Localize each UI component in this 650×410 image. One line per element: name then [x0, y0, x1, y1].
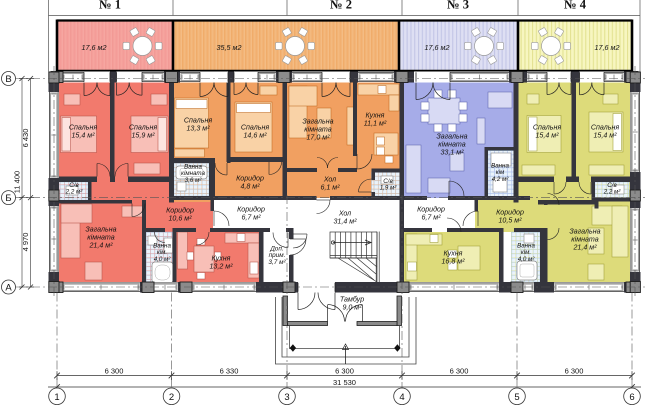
- svg-text:14,6 м²: 14,6 м²: [243, 131, 267, 139]
- svg-text:4: 4: [399, 392, 404, 403]
- svg-text:Коридор: Коридор: [496, 209, 524, 217]
- svg-text:3,6 м²: 3,6 м²: [185, 177, 203, 184]
- svg-text:13,2 м²: 13,2 м²: [209, 262, 233, 270]
- svg-text:15,9 м²: 15,9 м²: [131, 131, 155, 139]
- svg-text:10,6 м²: 10,6 м²: [168, 214, 192, 222]
- svg-text:10,5 м²: 10,5 м²: [498, 216, 522, 224]
- svg-text:6,1 м²: 6,1 м²: [320, 183, 340, 191]
- svg-text:Кухня: Кухня: [444, 250, 463, 258]
- svg-text:Кухня: Кухня: [212, 255, 231, 263]
- svg-text:Хол: Хол: [338, 210, 351, 218]
- svg-text:17,6 м2: 17,6 м2: [425, 43, 450, 52]
- svg-text:Б: Б: [5, 193, 11, 204]
- svg-text:31 530: 31 530: [333, 378, 356, 387]
- svg-text:3,7 м²: 3,7 м²: [268, 259, 286, 266]
- svg-text:Спальня: Спальня: [533, 124, 562, 132]
- svg-text:Спальня: Спальня: [129, 124, 158, 132]
- svg-text:4,8 м²: 4,8 м²: [240, 182, 260, 190]
- svg-text:А: А: [5, 282, 12, 293]
- svg-text:33,1 м²: 33,1 м²: [440, 148, 464, 156]
- svg-text:15,4 м²: 15,4 м²: [71, 131, 95, 139]
- svg-text:№ 4: № 4: [564, 0, 587, 12]
- svg-text:35,5 м2: 35,5 м2: [217, 43, 242, 52]
- svg-text:6 430: 6 430: [21, 129, 30, 148]
- svg-text:Коридор: Коридор: [417, 206, 445, 214]
- svg-text:кімната: кімната: [304, 125, 331, 133]
- svg-text:15,4 м²: 15,4 м²: [535, 131, 559, 139]
- svg-text:9,0 м²: 9,0 м²: [342, 303, 362, 311]
- svg-text:17,6 м2: 17,6 м2: [595, 43, 620, 52]
- svg-text:5: 5: [514, 392, 519, 403]
- svg-text:1: 1: [54, 392, 59, 403]
- svg-text:6 300: 6 300: [335, 367, 354, 376]
- svg-text:6 300: 6 300: [450, 367, 469, 376]
- svg-text:6 300: 6 300: [105, 367, 124, 376]
- svg-text:Хол: Хол: [323, 176, 336, 184]
- svg-text:4,0 м²: 4,0 м²: [518, 256, 536, 263]
- svg-text:6,7 м²: 6,7 м²: [421, 213, 441, 221]
- svg-text:2: 2: [169, 392, 174, 403]
- svg-text:6,7 м²: 6,7 м²: [241, 213, 261, 221]
- svg-text:11 400: 11 400: [13, 171, 22, 193]
- svg-text:4,0 м²: 4,0 м²: [154, 256, 172, 263]
- svg-text:Спальня: Спальня: [591, 124, 620, 132]
- svg-text:15,4 м²: 15,4 м²: [593, 131, 617, 139]
- svg-text:2,2 м²: 2,2 м²: [603, 188, 622, 195]
- svg-text:17,6 м2: 17,6 м2: [82, 43, 107, 52]
- svg-text:№ 3: № 3: [447, 0, 469, 12]
- svg-text:4 970: 4 970: [21, 233, 30, 252]
- svg-text:Загальна: Загальна: [85, 226, 116, 234]
- svg-text:2,2 м²: 2,2 м²: [65, 188, 84, 195]
- svg-text:Коридор: Коридор: [236, 175, 264, 183]
- svg-text:Коридор: Коридор: [166, 207, 194, 215]
- svg-text:Тамбур: Тамбур: [340, 296, 364, 304]
- svg-text:№ 1: № 1: [99, 0, 121, 12]
- svg-text:13,3 м²: 13,3 м²: [186, 124, 210, 132]
- svg-text:№ 2: № 2: [330, 0, 352, 12]
- svg-text:кімната: кімната: [438, 140, 465, 148]
- svg-text:6 300: 6 300: [565, 367, 584, 376]
- svg-text:1,9 м²: 1,9 м²: [380, 184, 398, 191]
- svg-text:Коридор: Коридор: [237, 206, 265, 214]
- svg-text:кімната: кімната: [571, 235, 598, 243]
- svg-text:6: 6: [629, 392, 634, 403]
- svg-text:Спальня: Спальня: [184, 117, 213, 125]
- svg-text:6 330: 6 330: [220, 367, 239, 376]
- svg-text:21,4 м²: 21,4 м²: [88, 241, 113, 249]
- svg-text:кімната: кімната: [87, 233, 114, 241]
- svg-text:3: 3: [284, 392, 289, 403]
- svg-text:Спальня: Спальня: [241, 124, 270, 132]
- svg-text:В: В: [5, 74, 11, 85]
- svg-text:Загальна: Загальна: [436, 133, 467, 141]
- svg-text:17,0 м²: 17,0 м²: [306, 133, 330, 141]
- svg-text:Загальна: Загальна: [569, 228, 600, 236]
- svg-text:16,8 м²: 16,8 м²: [441, 257, 465, 265]
- svg-text:31,4 м²: 31,4 м²: [333, 217, 357, 225]
- svg-text:Спальня: Спальня: [69, 124, 98, 132]
- svg-text:21,4 м²: 21,4 м²: [572, 243, 597, 251]
- svg-text:4,2 м²: 4,2 м²: [492, 176, 510, 183]
- svg-text:Кухня: Кухня: [366, 112, 385, 120]
- svg-text:Загальна: Загальна: [302, 118, 333, 126]
- svg-text:11,1 м²: 11,1 м²: [364, 119, 387, 127]
